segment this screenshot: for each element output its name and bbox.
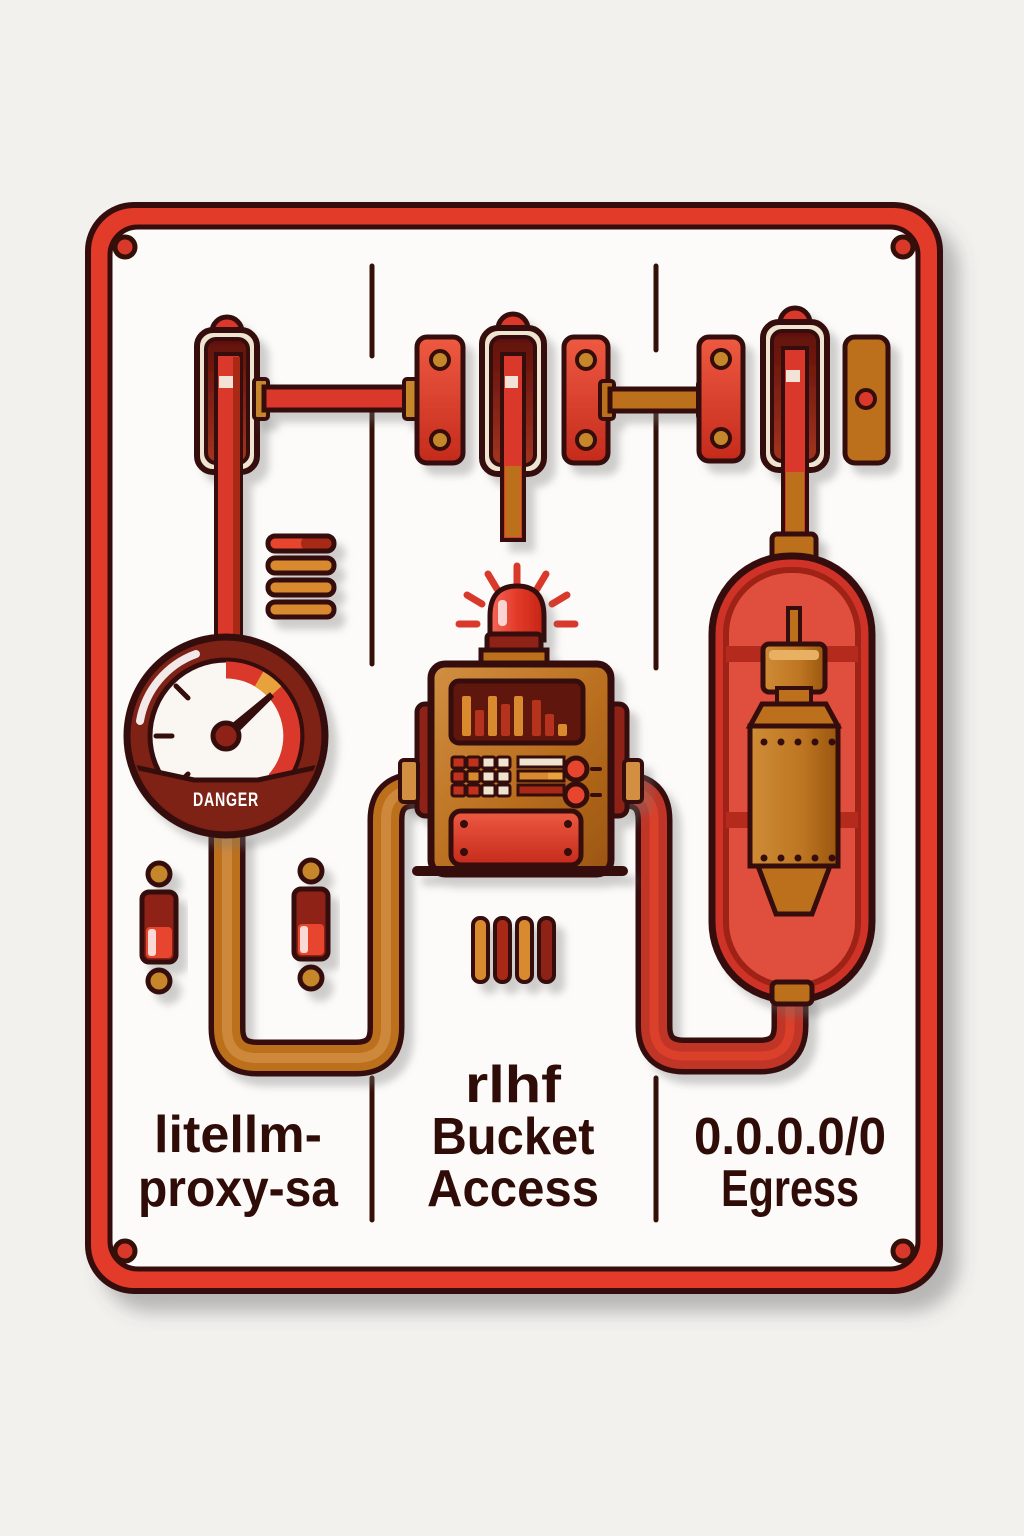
keypad-key [452,757,465,768]
keypad-key [482,771,495,782]
nameplate-rivet [460,820,468,828]
knob-bottom-icon [565,784,587,806]
toggle-dot-bottom-icon [300,967,322,989]
knob-top-icon [565,758,587,780]
canister-cap-stripe [769,650,819,660]
box-base-line [412,866,628,876]
link-bar [264,387,408,410]
label-egress-line1: 0.0.0.0/0 [694,1108,886,1166]
label-service-account-line1: litellm- [154,1106,322,1164]
indicator-bar [495,918,510,982]
anchor-plate-far-right [845,337,888,463]
strip-3 [518,785,564,795]
poster-stage: DANGER [0,0,1024,1536]
anchor-plate-screw-icon [431,431,449,449]
tank-bottom-collar [772,982,812,1004]
keypad-key [452,785,465,796]
nameplate-rivet [564,820,572,828]
indicator-bar-shade [301,537,333,550]
screen-bar [545,714,554,736]
label-bucket-line3: Access [427,1160,599,1218]
switch-lever-rod-shade [233,357,240,651]
toggle-knob-shine [148,929,156,956]
indicator-bar [517,918,532,982]
screen-bar [488,696,497,736]
label-bucket-line1: rlhf [465,1056,562,1114]
indicator-bar [268,580,334,595]
keypad-key [482,785,495,796]
box-nameplate [451,811,581,865]
keypad-key [467,771,480,782]
switch-lever-notch [786,370,800,382]
anchor-plate-screw-icon [577,351,595,369]
screw-top-right-icon [893,237,913,257]
screen-bar [501,704,510,736]
indicator-bar [268,602,334,617]
alarm-dome-shine [498,600,507,626]
box-port-collar-right [624,760,642,802]
nameplate-rivet [460,848,468,856]
switch-lever-notch [505,376,518,388]
screen-bar [514,696,523,736]
screen-bar [532,700,541,736]
link-bar [610,389,702,411]
anchor-plate-screw-icon [431,351,449,369]
keypad-key [497,757,510,768]
keypad-key [467,785,480,796]
screen-bar [475,710,484,736]
switch-lever-notch [219,376,233,388]
keypad-key [497,785,510,796]
safety-panel-illustration: DANGER [0,0,1024,1536]
anchor-plate-screw-icon [712,429,730,447]
label-egress-line2: Egress [721,1160,859,1218]
toggle-knob-shine [300,926,308,953]
indicator-bar [473,918,488,982]
canister-body [750,726,838,866]
keypad-key [497,771,510,782]
gauge-danger-label: DANGER [193,790,259,811]
screen-bar [462,696,471,736]
keypad-key [452,771,465,782]
screw-top-left-icon [115,237,135,257]
keypad [452,757,510,796]
anchor-plate-screw-icon [712,350,730,368]
nameplate-rivet [564,848,572,856]
strip-1 [518,757,564,767]
screw-bottom-left-icon [115,1241,135,1261]
toggle-dot-bottom-icon [148,970,170,992]
gauge-hub [213,723,239,749]
containment-tank [712,534,872,1004]
switch-lever-rod-lower [505,466,521,537]
label-bucket-line2: Bucket [432,1108,595,1166]
keypad-key [482,757,495,768]
toggle-dot-top-icon [300,860,322,882]
keypad-key [467,757,480,768]
box-port-collar-left [400,760,418,802]
toggle-dot-top-icon [148,863,170,885]
canister [750,608,838,914]
gauge-arc-gold [259,679,275,692]
plate-dot-icon [857,390,875,408]
indicator-bar [268,558,334,573]
screen-bar [558,724,567,736]
label-service-account-line2: proxy-sa [138,1160,339,1218]
anchor-plate-screw-icon [577,431,595,449]
screw-bottom-right-icon [893,1241,913,1261]
indicator-bar [539,918,554,982]
canister-shoulder [750,704,838,726]
